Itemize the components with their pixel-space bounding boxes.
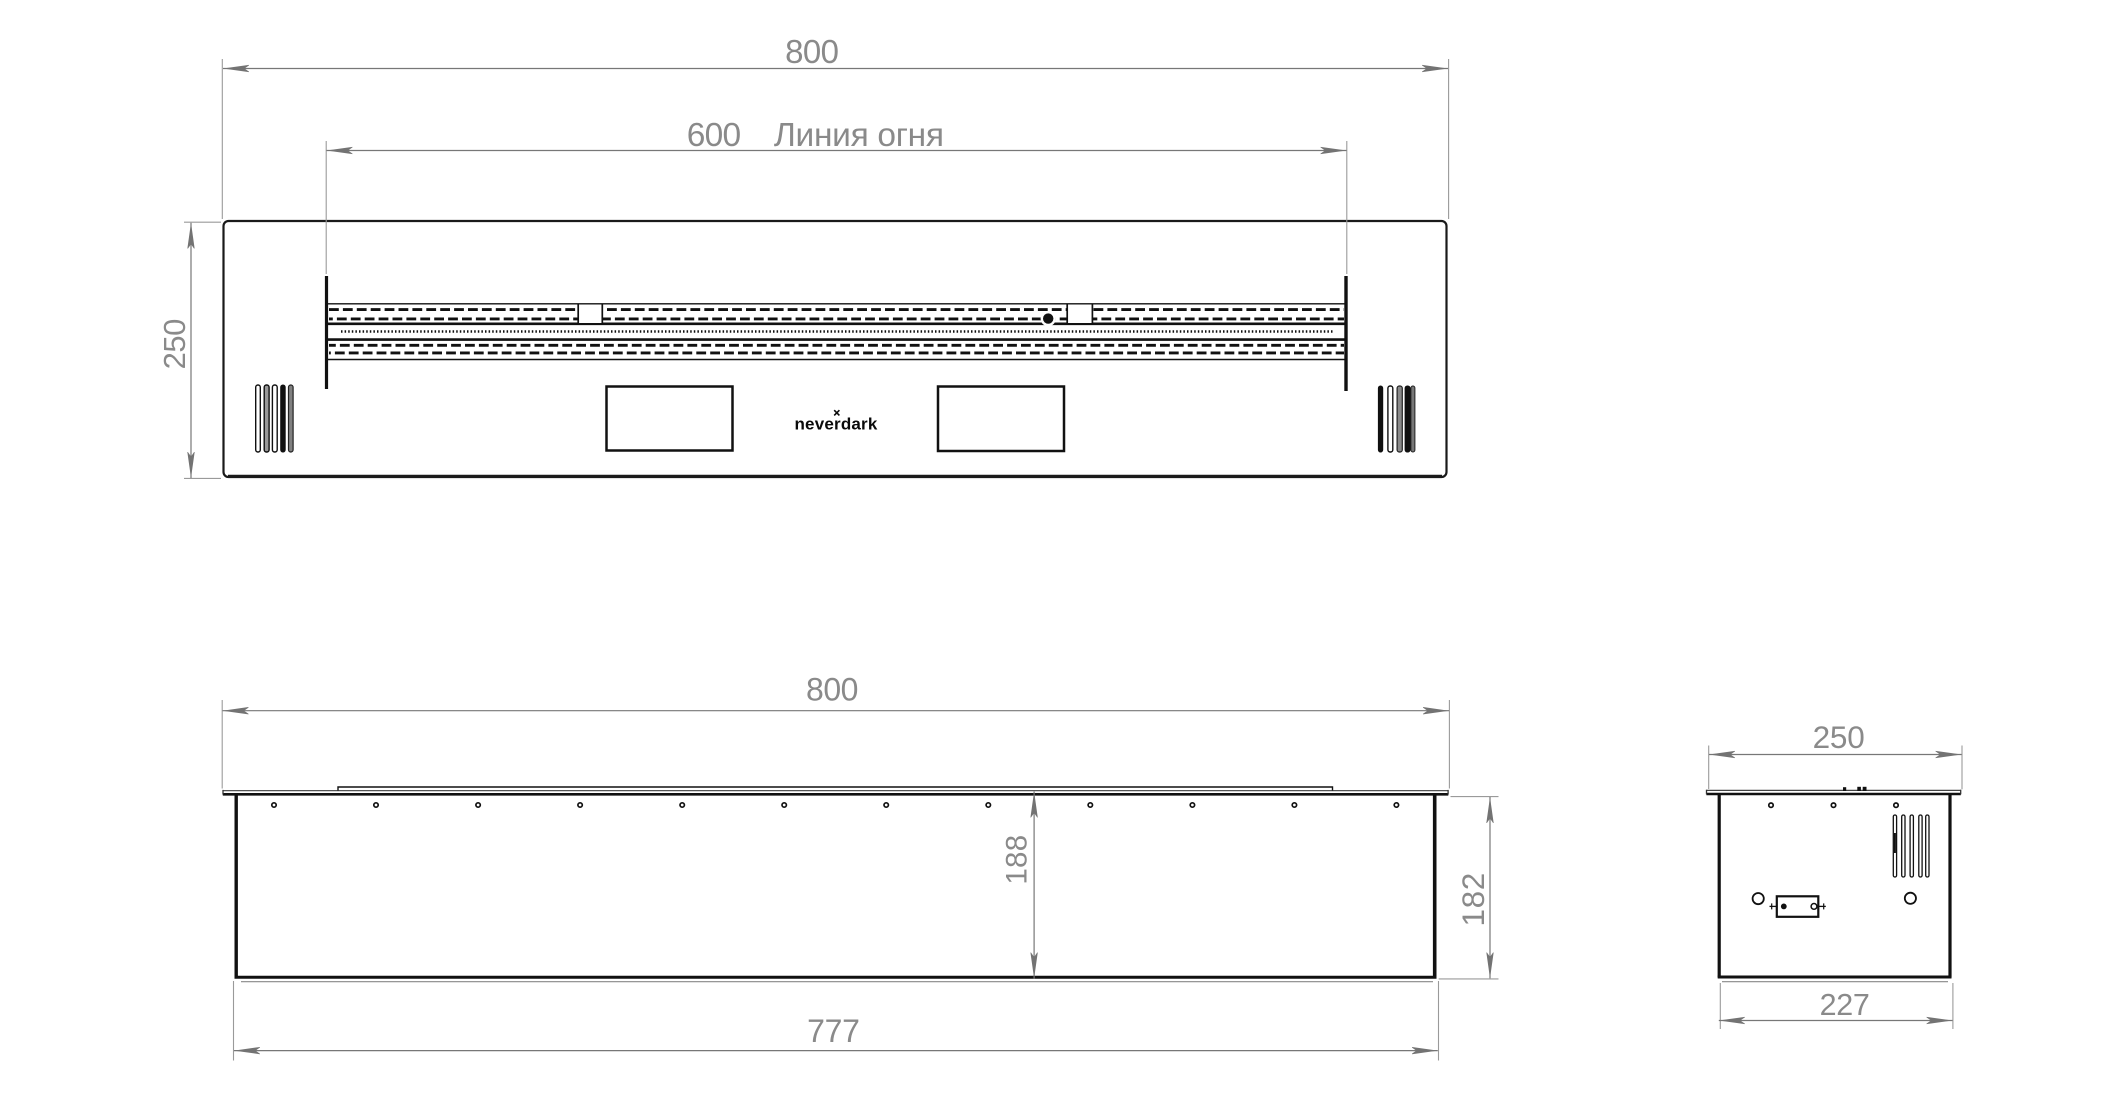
svg-text:188: 188 (1001, 835, 1034, 885)
svg-text:800: 800 (785, 33, 839, 70)
svg-text:250: 250 (157, 319, 192, 369)
svg-text:250: 250 (1813, 719, 1865, 755)
svg-text:227: 227 (1820, 988, 1870, 1022)
svg-text:neverdark: neverdark (794, 415, 877, 434)
svg-text:800: 800 (806, 672, 858, 708)
svg-text:600: 600 (687, 117, 741, 154)
svg-text:Линия огня: Линия огня (774, 117, 944, 154)
svg-text:182: 182 (1455, 872, 1491, 926)
svg-text:777: 777 (807, 1013, 860, 1049)
